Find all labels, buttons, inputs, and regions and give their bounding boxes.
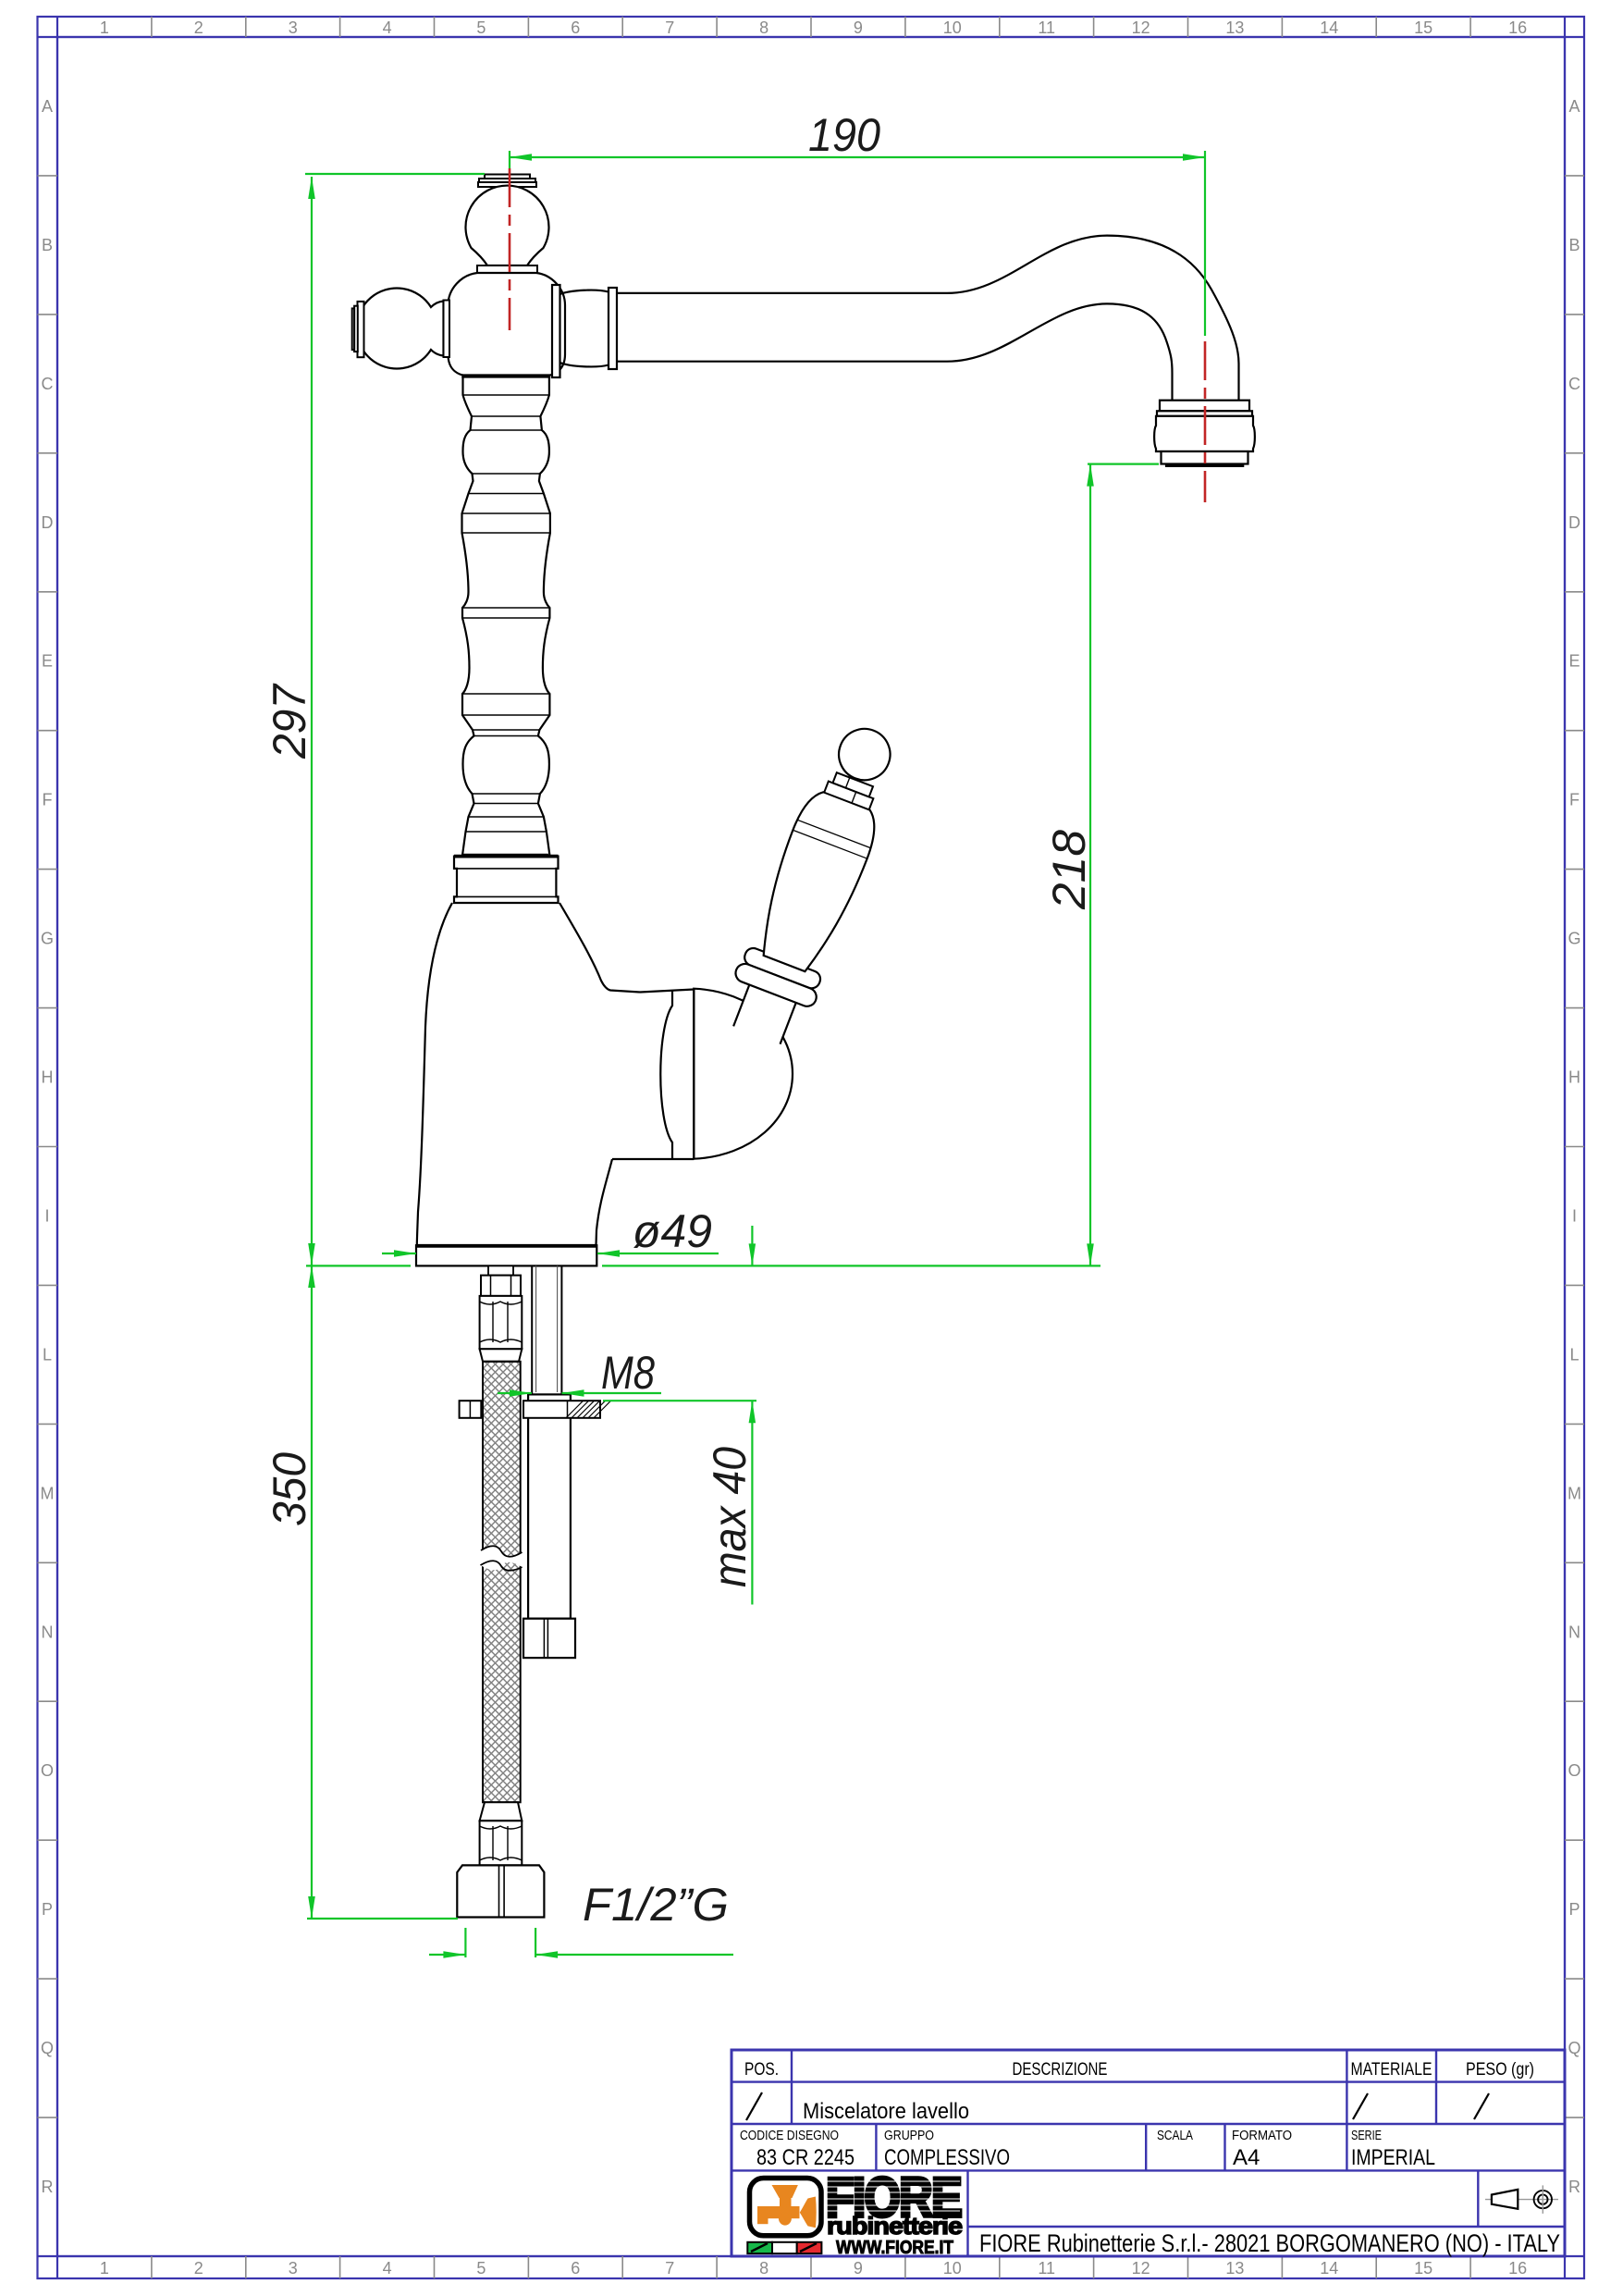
svg-text:H: H — [1568, 1068, 1580, 1087]
svg-text:N: N — [42, 1623, 54, 1641]
svg-text:WWW.FIORE.IT: WWW.FIORE.IT — [836, 2238, 953, 2258]
svg-text:297: 297 — [264, 683, 315, 759]
svg-text:R: R — [1568, 2178, 1580, 2196]
svg-text:G: G — [1568, 930, 1580, 948]
svg-text:ø49: ø49 — [633, 1205, 712, 1257]
svg-text:A: A — [42, 97, 53, 116]
svg-text:O: O — [41, 1761, 54, 1780]
svg-text:M: M — [41, 1484, 55, 1502]
svg-text:4: 4 — [383, 2259, 392, 2277]
svg-text:L: L — [1569, 1345, 1579, 1364]
svg-text:L: L — [43, 1345, 52, 1364]
svg-text:350: 350 — [264, 1452, 315, 1526]
svg-text:5: 5 — [476, 2259, 486, 2277]
svg-text:F: F — [43, 791, 53, 809]
svg-text:F: F — [1569, 791, 1580, 809]
svg-text:R: R — [42, 2178, 54, 2196]
svg-text:2: 2 — [194, 2259, 203, 2277]
svg-text:6: 6 — [571, 2259, 580, 2277]
svg-text:D: D — [42, 513, 54, 532]
svg-text:P: P — [42, 1900, 53, 1919]
svg-text:G: G — [41, 930, 54, 948]
svg-text:7: 7 — [665, 19, 674, 37]
svg-text:8: 8 — [759, 2259, 768, 2277]
svg-text:E: E — [42, 652, 53, 671]
svg-text:E: E — [1568, 652, 1580, 671]
svg-text:190: 190 — [808, 109, 880, 161]
svg-text:SCALA: SCALA — [1157, 2128, 1193, 2143]
svg-text:12: 12 — [1132, 2259, 1150, 2277]
svg-text:M: M — [1568, 1484, 1581, 1502]
svg-text:B: B — [42, 236, 53, 254]
svg-text:16: 16 — [1508, 19, 1527, 37]
svg-text:14: 14 — [1320, 2259, 1338, 2277]
svg-text:FORMATO: FORMATO — [1232, 2128, 1292, 2143]
svg-text:12: 12 — [1132, 19, 1150, 37]
svg-text:N: N — [1568, 1623, 1580, 1641]
svg-text:PESO (gr): PESO (gr) — [1466, 2060, 1534, 2080]
svg-text:GRUPPO: GRUPPO — [884, 2128, 934, 2143]
svg-text:O: O — [1568, 1761, 1580, 1780]
svg-text:max 40: max 40 — [704, 1447, 756, 1587]
svg-text:M8: M8 — [601, 1347, 655, 1399]
svg-text:Miscelatore lavello: Miscelatore lavello — [803, 2099, 969, 2124]
svg-text:B: B — [1568, 236, 1580, 254]
svg-text:C: C — [1568, 375, 1580, 393]
svg-text:FIORE Rubinetterie S.r.l.- 280: FIORE Rubinetterie S.r.l.- 28021 BORGOMA… — [979, 2229, 1560, 2257]
svg-text:11: 11 — [1038, 2259, 1055, 2277]
svg-text:8: 8 — [759, 19, 768, 37]
svg-text:5: 5 — [476, 19, 486, 37]
svg-text:10: 10 — [943, 19, 962, 37]
svg-text:I: I — [1572, 1207, 1577, 1226]
svg-text:13: 13 — [1225, 19, 1244, 37]
svg-text:C: C — [42, 375, 54, 393]
svg-text:3: 3 — [289, 19, 298, 37]
svg-text:H: H — [42, 1068, 54, 1087]
svg-text:2: 2 — [194, 19, 203, 37]
svg-text:D: D — [1568, 513, 1580, 532]
svg-text:15: 15 — [1414, 2259, 1432, 2277]
svg-text:I: I — [44, 1207, 49, 1226]
svg-text:7: 7 — [665, 2259, 674, 2277]
svg-text:6: 6 — [571, 19, 580, 37]
svg-text:9: 9 — [854, 19, 863, 37]
svg-text:SERIE: SERIE — [1351, 2128, 1382, 2143]
svg-text:Q: Q — [41, 2039, 54, 2057]
svg-text:A: A — [1568, 97, 1580, 116]
svg-text:13: 13 — [1225, 2259, 1244, 2277]
svg-text:9: 9 — [854, 2259, 863, 2277]
svg-text:Q: Q — [1568, 2039, 1580, 2057]
svg-text:DESCRIZIONE: DESCRIZIONE — [1013, 2060, 1108, 2080]
svg-text:3: 3 — [289, 2259, 298, 2277]
svg-text:rubinetterie: rubinetterie — [827, 2212, 963, 2240]
svg-text:16: 16 — [1508, 2259, 1527, 2277]
svg-text:P: P — [1568, 1900, 1580, 1919]
svg-text:F1/2”G: F1/2”G — [583, 1879, 729, 1931]
svg-text:MATERIALE: MATERIALE — [1351, 2060, 1432, 2080]
svg-text:11: 11 — [1038, 19, 1055, 37]
svg-text:218: 218 — [1043, 830, 1095, 910]
svg-text:1: 1 — [100, 2259, 109, 2277]
svg-text:A4: A4 — [1233, 2145, 1260, 2170]
svg-text:4: 4 — [383, 19, 392, 37]
svg-text:1: 1 — [100, 19, 109, 37]
svg-text:14: 14 — [1320, 19, 1338, 37]
svg-text:POS.: POS. — [744, 2060, 779, 2080]
svg-text:10: 10 — [943, 2259, 962, 2277]
svg-text:IMPERIAL: IMPERIAL — [1351, 2145, 1435, 2170]
svg-text:15: 15 — [1414, 19, 1432, 37]
svg-text:CODICE DISEGNO: CODICE DISEGNO — [740, 2128, 839, 2143]
